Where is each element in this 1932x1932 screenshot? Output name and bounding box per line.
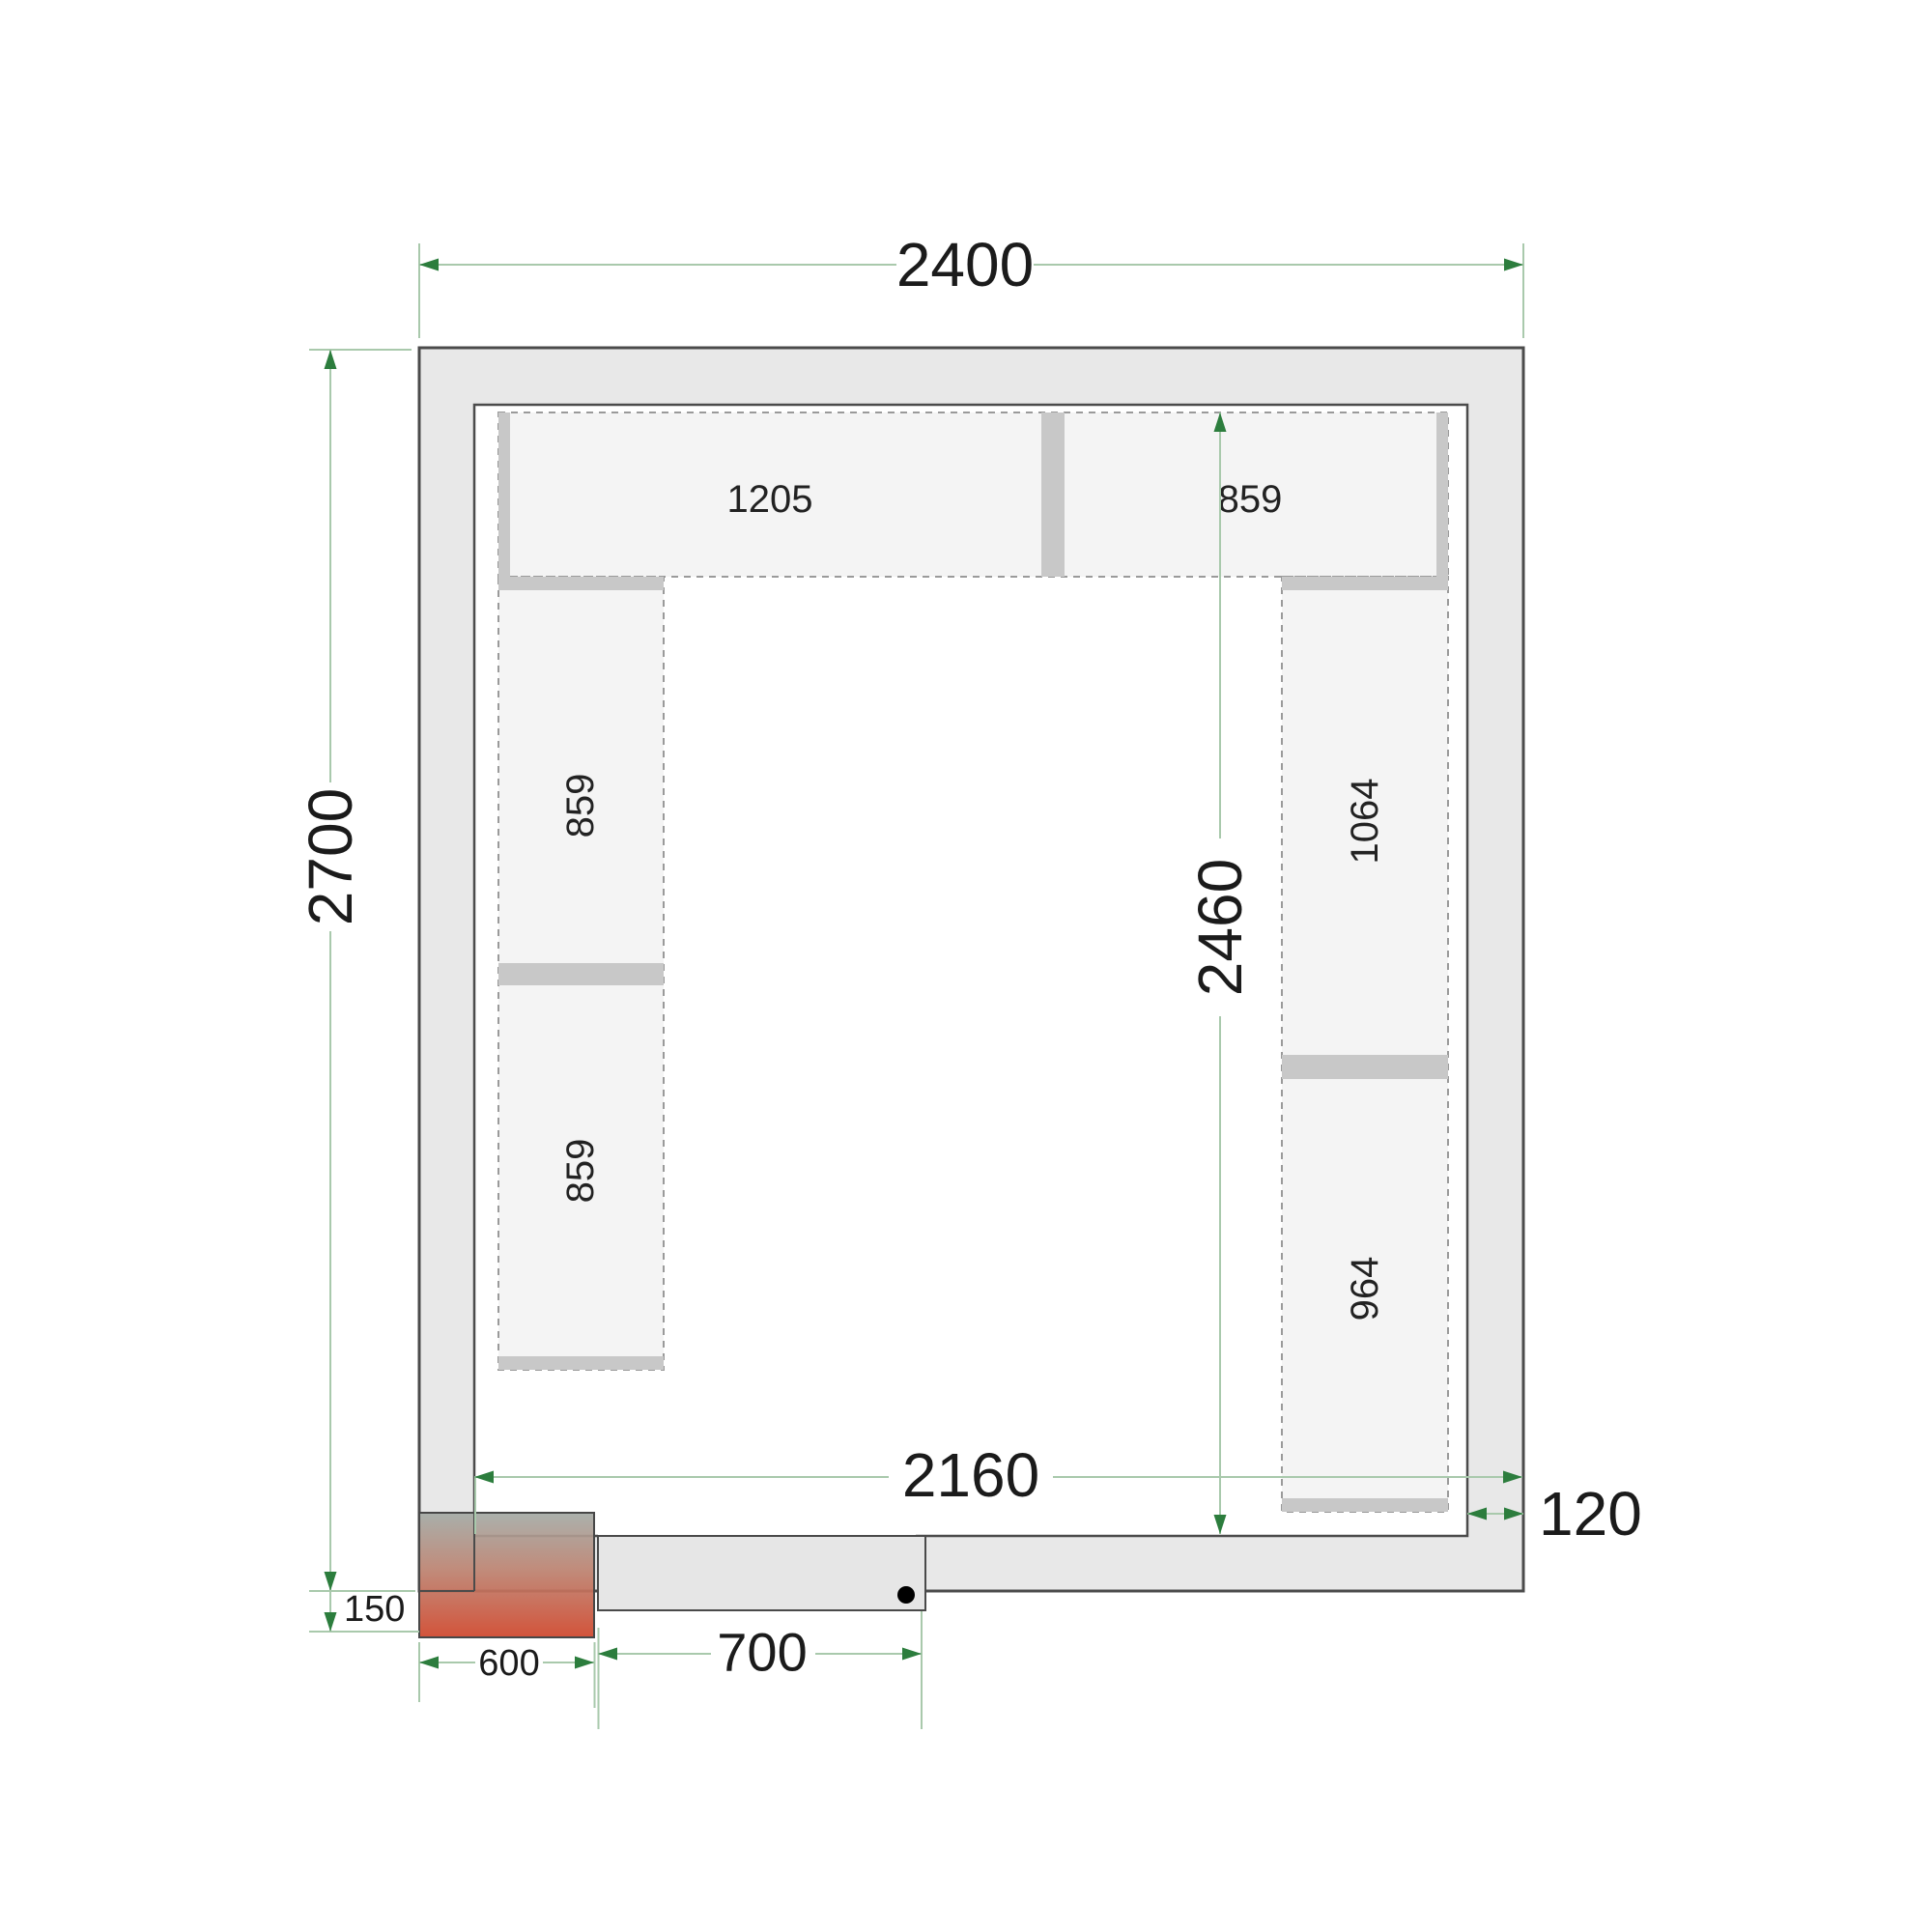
dim-label-outer-depth: 2700 [296, 788, 365, 925]
arrow-down-icon [325, 1612, 337, 1632]
arrow-right-icon [575, 1657, 594, 1669]
dim-outer-depth: 2700 [296, 350, 412, 1632]
shelf-post-top-right [1436, 412, 1448, 577]
dim-label-inner-width: 2160 [902, 1440, 1039, 1510]
dim-label-unit-width: 600 [478, 1643, 539, 1684]
dim-label-door-width: 700 [717, 1622, 807, 1683]
shelf-bar-left-bottom [498, 1356, 664, 1370]
dim-unit-width: 600 [419, 1642, 595, 1708]
arrow-up-icon [325, 350, 337, 369]
shelf-label-top-right: 859 [1218, 478, 1283, 521]
dim-label-outer-width: 2400 [896, 230, 1034, 299]
shelf-bar-right-divider [1282, 1055, 1448, 1079]
dim-unit-protrusion: 150 [309, 1589, 419, 1632]
floor-plan-drawing: 1205 859 859 859 1064 964 2400 2700 [0, 0, 1932, 1932]
dim-label-unit-protrusion: 150 [344, 1589, 405, 1630]
arrow-left-icon [419, 1657, 439, 1669]
shelf-label-right-upper: 1064 [1344, 779, 1386, 865]
shelf-top-band [498, 412, 1448, 577]
shelf-post-top-left [498, 412, 510, 577]
shelf-bar-left-top [498, 577, 664, 590]
shelf-label-left-upper: 859 [559, 774, 602, 838]
shelf-bar-left-divider [498, 963, 664, 985]
dim-door-width: 700 [598, 1611, 922, 1729]
door-handle-dot-icon [897, 1586, 915, 1604]
shelf-bar-right-bottom [1282, 1498, 1448, 1512]
shelf-bar-right-top [1282, 577, 1448, 590]
shelf-label-left-lower: 859 [559, 1139, 602, 1204]
arrow-right-icon [1504, 259, 1523, 271]
arrow-left-icon [419, 259, 439, 271]
cooling-unit-block [419, 1513, 594, 1637]
dim-label-inner-depth: 2460 [1185, 859, 1255, 996]
shelf-right-run [1282, 577, 1448, 1512]
shelf-post-top-center [1041, 412, 1065, 577]
shelf-label-right-lower: 964 [1344, 1257, 1386, 1321]
arrow-down-icon [325, 1572, 337, 1591]
dim-label-wall-thickness: 120 [1539, 1479, 1642, 1548]
shelf-label-top-left: 1205 [727, 478, 813, 521]
arrow-right-icon [902, 1648, 922, 1661]
door [598, 1536, 925, 1610]
door-leaf [598, 1536, 925, 1610]
dim-outer-width: 2400 [419, 230, 1523, 338]
arrow-left-icon [598, 1648, 617, 1661]
cooling-unit [419, 1513, 594, 1637]
floor-plan-canvas: 1205 859 859 859 1064 964 2400 2700 [0, 0, 1932, 1932]
